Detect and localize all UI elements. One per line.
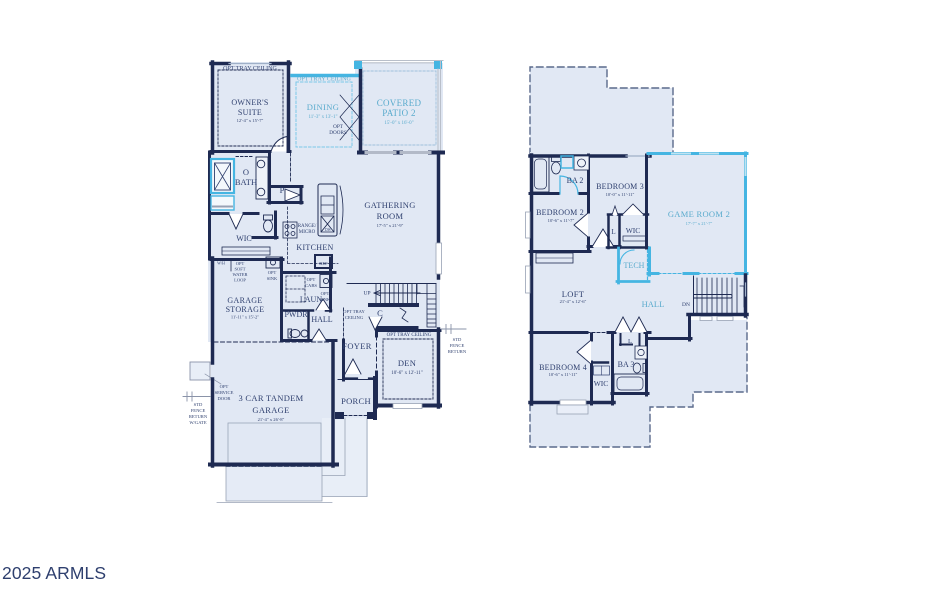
svg-text:BA 3: BA 3 [618,360,635,369]
svg-text:SOFT: SOFT [234,267,245,272]
svg-text:BEDROOM 4: BEDROOM 4 [539,363,587,372]
svg-text:OPT: OPT [268,270,277,275]
svg-text:O: O [243,167,249,177]
svg-text:WIC: WIC [236,234,252,243]
svg-text:DOOR: DOOR [217,396,231,401]
svg-text:STD: STD [194,402,203,407]
svg-text:STORAGE: STORAGE [226,305,265,314]
svg-text:3 CAR TANDEM: 3 CAR TANDEM [238,393,303,403]
svg-text:WATER: WATER [233,272,248,277]
svg-text:P: P [280,185,285,195]
svg-text:DEN: DEN [398,358,416,368]
svg-text:RANGE/: RANGE/ [298,224,317,229]
svg-text:FENCE: FENCE [191,408,206,413]
svg-text:DOORS: DOORS [329,130,347,136]
svg-text:FENCE: FENCE [450,343,465,348]
svg-text:DW: DW [325,228,332,232]
svg-text:DINING: DINING [307,102,340,112]
svg-text:W/GATE: W/GATE [189,420,207,425]
svg-text:REF: REF [319,261,328,266]
svg-text:DN: DN [682,302,690,308]
svg-text:RETURN: RETURN [448,349,467,354]
svg-text:BEDROOM 2: BEDROOM 2 [536,208,584,217]
svg-text:TECH: TECH [624,261,645,270]
svg-text:10'-6" x 11'-11": 10'-6" x 11'-11" [549,372,578,377]
svg-text:10'-0" x 11'-11": 10'-0" x 11'-11" [606,192,635,197]
svg-text:11'-3" x 13'-1": 11'-3" x 13'-1" [308,115,337,120]
svg-text:HALL: HALL [642,299,665,309]
svg-text:WIC: WIC [594,379,609,388]
svg-text:OPT: OPT [307,277,316,282]
svg-text:LOOP: LOOP [234,278,246,283]
svg-text:OPT TRAY CEILING: OPT TRAY CEILING [297,77,351,83]
svg-text:CEILING: CEILING [345,315,364,320]
svg-text:LOFT: LOFT [562,289,585,299]
svg-text:2025 ARMLS: 2025 ARMLS [2,563,106,583]
svg-text:LAUN: LAUN [300,295,322,304]
svg-text:OPT TRAY CEILING: OPT TRAY CEILING [223,66,277,72]
svg-text:PORCH: PORCH [341,396,371,406]
svg-text:21'-4" x 12'-6": 21'-4" x 12'-6" [560,299,587,304]
svg-text:PATIO 2: PATIO 2 [382,108,416,118]
svg-text:MICRO: MICRO [299,230,316,235]
svg-text:OWNER'S: OWNER'S [231,98,268,107]
svg-text:W/H: W/H [217,261,225,266]
svg-text:HALL: HALL [311,315,332,324]
svg-text:BA 2: BA 2 [567,176,584,185]
svg-text:UP: UP [363,291,370,297]
svg-text:OPT: OPT [236,261,245,266]
svg-text:SUITE: SUITE [238,108,262,117]
svg-text:GARAGE: GARAGE [227,296,262,305]
svg-text:FOYER: FOYER [342,341,371,351]
svg-text:L: L [611,228,615,236]
svg-text:OPT TRAY: OPT TRAY [343,309,365,314]
svg-text:PWDR: PWDR [284,310,308,319]
svg-text:BATH: BATH [235,177,257,187]
svg-text:GAME ROOM 2: GAME ROOM 2 [668,209,730,219]
svg-text:11'-11" x 15'-2": 11'-11" x 15'-2" [231,315,259,320]
svg-text:10'-6" x 11'-7": 10'-6" x 11'-7" [548,218,575,223]
svg-text:17'-7" x 21'-7": 17'-7" x 21'-7" [686,221,713,226]
svg-text:OPT: OPT [220,384,229,389]
svg-text:WIC: WIC [626,226,641,235]
svg-text:15'-0" x 16'-0": 15'-0" x 16'-0" [384,121,413,126]
svg-text:17'-5" x 21'-9": 17'-5" x 21'-9" [377,223,404,228]
svg-text:KITCHEN: KITCHEN [296,243,333,252]
svg-text:COVERED: COVERED [377,98,422,108]
svg-text:CABS: CABS [305,283,317,288]
svg-text:GATHERING: GATHERING [364,200,415,210]
svg-text:BEDROOM 3: BEDROOM 3 [596,182,644,191]
svg-text:10'-6" x 12'-11": 10'-6" x 12'-11" [391,371,423,376]
svg-text:RETURN: RETURN [189,414,208,419]
svg-text:SERVICE: SERVICE [215,390,234,395]
svg-text:C: C [377,308,383,318]
svg-text:L: L [628,338,632,345]
svg-text:12'-4" x 15'-7": 12'-4" x 15'-7" [237,118,264,123]
svg-text:GARAGE: GARAGE [252,405,289,415]
svg-text:ROOM: ROOM [377,211,404,221]
svg-text:21'-4" x 26'-8": 21'-4" x 26'-8" [258,417,285,422]
svg-text:STD: STD [453,337,462,342]
svg-text:SINK: SINK [267,276,278,281]
svg-text:OPT TRAY CEILING: OPT TRAY CEILING [387,333,432,338]
